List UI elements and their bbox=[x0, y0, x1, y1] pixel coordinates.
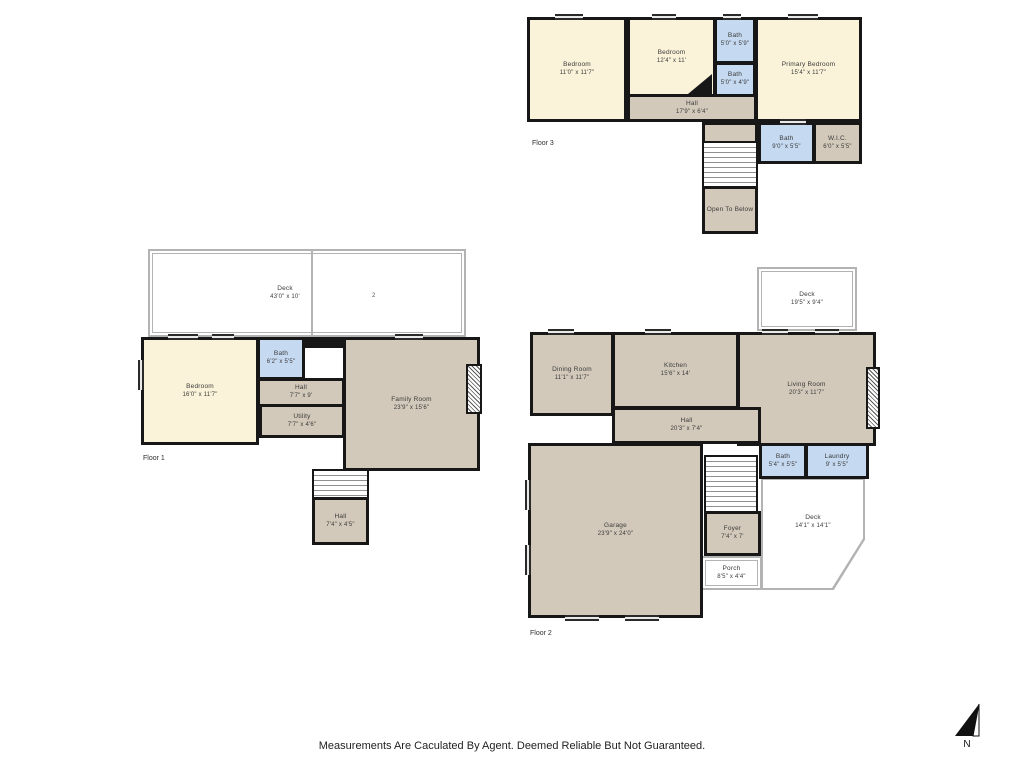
room-bath: Bath9'0" x 5'5" bbox=[758, 122, 815, 164]
deck-mark: 2 bbox=[372, 293, 375, 299]
window bbox=[525, 545, 531, 575]
room-name: Deck bbox=[761, 514, 865, 522]
window bbox=[788, 14, 818, 20]
room-dims: 19'5" x 9'4" bbox=[791, 300, 823, 308]
floor-label: Floor 1 bbox=[143, 455, 165, 462]
room-dims: 16'0" x 11'7" bbox=[182, 392, 217, 400]
room-name: W.I.C. bbox=[823, 135, 851, 143]
staircase bbox=[702, 141, 758, 188]
room-dims: 20'3" x 7'4" bbox=[671, 426, 703, 434]
room-family-room: Family Room23'9" x 15'6" bbox=[343, 337, 480, 471]
room-dims: 5'4" x 5'5" bbox=[769, 462, 797, 470]
room-name: Garage bbox=[598, 522, 634, 530]
room-dims: 9'0" x 5'5" bbox=[772, 144, 800, 152]
room-garage: Garage23'9" x 24'0" bbox=[528, 443, 703, 618]
window bbox=[645, 329, 671, 335]
room-wic: W.I.C.6'0" x 5'5" bbox=[813, 122, 862, 164]
room-kitchen: Kitchen15'6" x 14' bbox=[612, 332, 739, 409]
room-dims: 43'0" x 10' bbox=[255, 294, 315, 302]
deck-surface bbox=[763, 480, 863, 588]
floor-label: Floor 3 bbox=[532, 140, 554, 147]
room-name: Bath bbox=[721, 71, 749, 79]
room-name: Laundry bbox=[825, 453, 850, 461]
deck-outline: Deck19'5" x 9'4" bbox=[757, 267, 857, 331]
room-name: Dining Room bbox=[552, 366, 592, 374]
floorplan-canvas: Bedroom11'0" x 11'7" Bedroom12'4" x 11' … bbox=[0, 0, 1024, 768]
window bbox=[212, 334, 234, 340]
room-dims: 6'0" x 5'5" bbox=[823, 144, 851, 152]
room-name: Hall bbox=[290, 384, 313, 392]
room-name: Living Room bbox=[787, 381, 825, 389]
room-hall: Hall17'9" x 6'4" bbox=[627, 94, 757, 122]
window bbox=[723, 14, 741, 20]
room-name: Hall bbox=[676, 100, 708, 108]
room-dims: 23'9" x 24'0" bbox=[598, 531, 634, 539]
room-name: Utility bbox=[288, 413, 316, 421]
room-dims: 7'7" x 9' bbox=[290, 393, 313, 401]
room-name: Foyer bbox=[721, 525, 744, 533]
room-dims: 15'6" x 14' bbox=[661, 371, 691, 379]
room-name: Bath bbox=[267, 350, 295, 358]
garage-door bbox=[565, 615, 599, 621]
room-name: Deck bbox=[255, 285, 315, 293]
room-name: Bedroom bbox=[560, 61, 595, 69]
window bbox=[652, 14, 676, 20]
room-bath: Bath5'0" x 5'9" bbox=[714, 17, 756, 64]
room-bedroom: Bedroom16'0" x 11'7" bbox=[141, 337, 259, 445]
north-arrow-icon bbox=[952, 702, 982, 738]
north-label: N bbox=[963, 739, 970, 750]
room-dims: 11'0" x 11'7" bbox=[560, 70, 595, 78]
room-hall: Hall7'4" x 4'5" bbox=[312, 497, 369, 545]
room-dims: 9' x 5'5" bbox=[825, 462, 850, 470]
room-name: Bedroom bbox=[182, 383, 217, 391]
porch-outline: Porch8'5" x 4'4" bbox=[701, 556, 762, 590]
room-name: Open To Below bbox=[707, 206, 754, 214]
room-name: Bedroom bbox=[657, 49, 686, 57]
room-dims: 14'1" x 14'1" bbox=[761, 523, 865, 531]
window bbox=[780, 119, 806, 125]
staircase bbox=[312, 469, 369, 499]
room-name: Hall bbox=[671, 417, 703, 425]
room-name: Bath bbox=[721, 32, 749, 40]
room-dims: 5'0" x 4'9" bbox=[721, 80, 749, 88]
room-name: Bath bbox=[769, 453, 797, 461]
room-dims: 6'2" x 5'5" bbox=[267, 359, 295, 367]
room-name: Porch bbox=[717, 565, 745, 573]
room-dims: 5'0" x 5'9" bbox=[721, 41, 749, 49]
room-dims: 7'7" x 4'6" bbox=[288, 422, 316, 430]
room-hall: Hall7'7" x 9' bbox=[257, 378, 345, 407]
room-bath: Bath5'4" x 5'5" bbox=[759, 443, 807, 479]
measurement-disclaimer: Measurements Are Caculated By Agent. Dee… bbox=[0, 740, 1024, 752]
fireplace bbox=[466, 364, 482, 414]
room-name: Hall bbox=[326, 513, 354, 521]
north-indicator: N bbox=[952, 702, 982, 750]
window bbox=[395, 334, 423, 340]
staircase bbox=[704, 455, 758, 513]
closet-block bbox=[303, 337, 345, 348]
deck-label: Deck 14'1" x 14'1" bbox=[761, 514, 865, 531]
room-dims: 7'4" x 4'5" bbox=[326, 522, 354, 530]
room-dims: 8'5" x 4'4" bbox=[717, 574, 745, 582]
room-name: Family Room bbox=[391, 396, 431, 404]
window bbox=[762, 329, 788, 335]
window bbox=[815, 329, 839, 335]
window bbox=[548, 329, 574, 335]
floor-label: Floor 2 bbox=[530, 630, 552, 637]
room-bath: Bath5'0" x 4'9" bbox=[714, 62, 756, 97]
room-utility: Utility7'7" x 4'6" bbox=[259, 404, 345, 438]
room-dims: 12'4" x 11' bbox=[657, 58, 686, 66]
fireplace bbox=[866, 367, 880, 429]
room-dims: 17'9" x 6'4" bbox=[676, 109, 708, 117]
window bbox=[555, 14, 583, 20]
room-dims: 23'9" x 15'6" bbox=[391, 405, 431, 413]
room-dining-room: Dining Room11'1" x 11'7" bbox=[530, 332, 614, 416]
window bbox=[525, 480, 531, 510]
room-dims: 20'3" x 11'7" bbox=[787, 390, 825, 398]
room-dims: 7'4" x 7' bbox=[721, 534, 744, 542]
room-foyer: Foyer7'4" x 7' bbox=[704, 511, 761, 556]
room-primary-bedroom: Primary Bedroom15'4" x 11'7" bbox=[755, 17, 862, 122]
room-name: Deck bbox=[791, 291, 823, 299]
window bbox=[168, 334, 198, 340]
deck-outline: Deck 43'0" x 10' 2 bbox=[148, 249, 466, 337]
room-name: Kitchen bbox=[661, 362, 691, 370]
deck-outline-angled bbox=[761, 478, 865, 590]
window bbox=[138, 360, 144, 390]
room-bedroom: Bedroom11'0" x 11'7" bbox=[527, 17, 627, 122]
room-dims: 11'1" x 11'7" bbox=[552, 375, 592, 383]
room-hall: Hall20'3" x 7'4" bbox=[612, 407, 761, 444]
room-dims: 15'4" x 11'7" bbox=[782, 70, 836, 78]
garage-door bbox=[625, 615, 659, 621]
room-name: Primary Bedroom bbox=[782, 61, 836, 69]
room-bath: Bath6'2" x 5'5" bbox=[257, 337, 305, 380]
deck-divider bbox=[311, 249, 313, 337]
room-name: Bath bbox=[772, 135, 800, 143]
room-open-to-below: Open To Below bbox=[702, 186, 758, 234]
room-laundry: Laundry9' x 5'5" bbox=[805, 443, 869, 479]
